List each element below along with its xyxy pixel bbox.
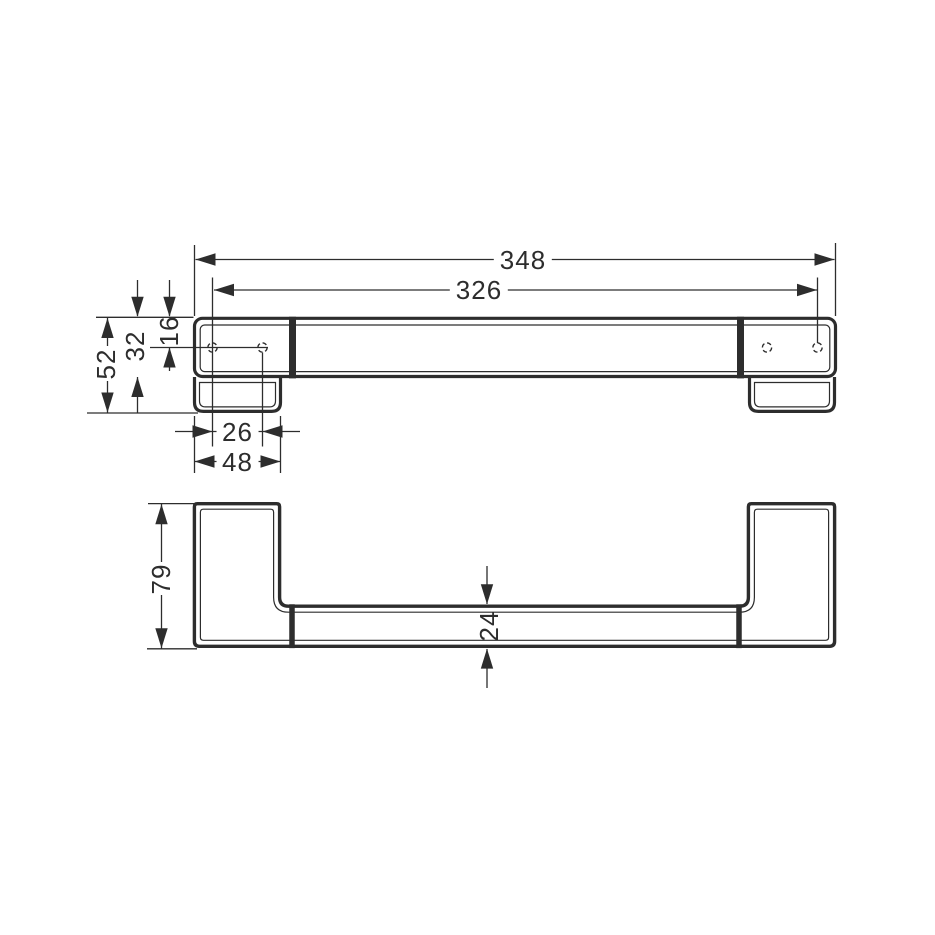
arrowhead <box>101 393 113 413</box>
arrowhead <box>261 455 281 467</box>
dimension-lines <box>87 243 836 688</box>
dim-label-overall-height: 79 <box>148 563 174 594</box>
arrowhead <box>481 584 493 604</box>
plan-left-foot-inner <box>200 383 276 407</box>
plan-right-foot-inner <box>755 383 830 407</box>
dim-label-rail-height: 24 <box>476 610 502 641</box>
arrowhead <box>163 348 175 368</box>
dim-label-rail-depth: 32 <box>122 330 148 361</box>
dim-label-plate-width: 48 <box>216 449 259 475</box>
arrowhead <box>101 318 113 338</box>
arrowhead <box>263 425 283 437</box>
arrowhead <box>797 284 817 296</box>
arrowhead <box>195 455 215 467</box>
mounting-hole <box>813 343 822 352</box>
arrowhead <box>214 284 234 296</box>
arrowhead <box>193 425 213 437</box>
arrowhead <box>155 628 167 648</box>
arrowhead <box>155 504 167 524</box>
arrowhead <box>131 377 143 397</box>
mounting-hole <box>762 343 771 352</box>
dim-label-hole-spacing: 326 <box>450 277 508 303</box>
arrowhead <box>163 297 175 317</box>
front-view <box>194 504 834 648</box>
dim-label-edge-to-hole: 16 <box>156 316 182 347</box>
dim-label-plate-hole-spacing: 26 <box>216 419 259 445</box>
dim-label-overall-depth: 52 <box>93 348 119 379</box>
arrowhead <box>196 253 216 265</box>
arrowhead <box>131 297 143 317</box>
arrowhead <box>481 649 493 669</box>
arrowhead <box>815 253 835 265</box>
technical-drawing <box>0 0 935 935</box>
drawing-canvas: 348 326 52 32 16 26 48 79 24 <box>0 0 935 935</box>
dim-label-overall-width: 348 <box>494 247 552 273</box>
plan-view <box>195 317 836 412</box>
dim-326 <box>213 278 818 447</box>
